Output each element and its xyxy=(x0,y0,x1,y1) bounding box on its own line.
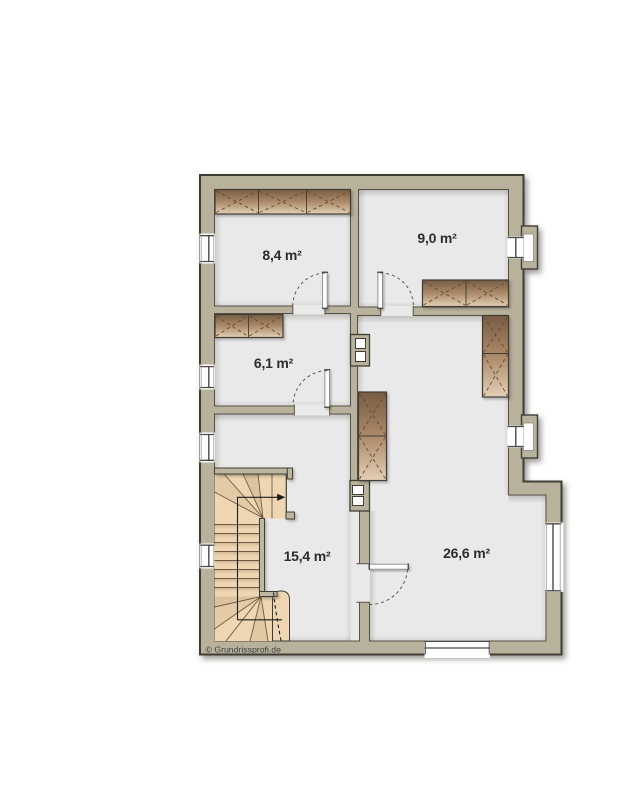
svg-text:9,0 m²: 9,0 m² xyxy=(417,230,457,246)
svg-text:15,4 m²: 15,4 m² xyxy=(284,548,331,564)
svg-text:© Grundrissprofi.de: © Grundrissprofi.de xyxy=(206,645,282,655)
svg-text:6,1 m²: 6,1 m² xyxy=(254,355,294,371)
svg-text:8,4 m²: 8,4 m² xyxy=(262,247,302,263)
svg-text:26,6 m²: 26,6 m² xyxy=(443,545,490,561)
